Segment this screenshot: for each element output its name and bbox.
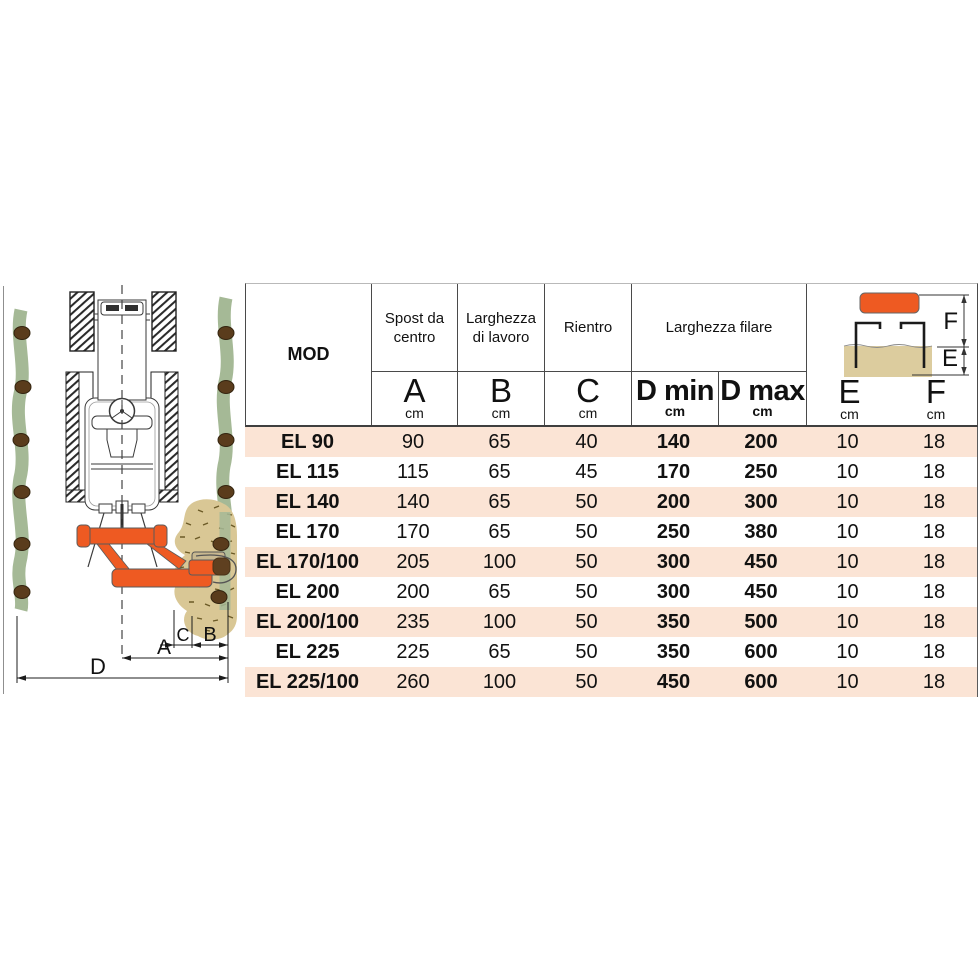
table-cell-f: 18 bbox=[890, 607, 978, 637]
table-row: EL 225/100260100504506001018 bbox=[245, 667, 977, 697]
ef-label-f: F bbox=[943, 308, 958, 335]
table-cell-e: 10 bbox=[805, 517, 890, 547]
table-cell-a: 90 bbox=[370, 427, 456, 457]
table-cell-e: 10 bbox=[805, 607, 890, 637]
dim-label-b: B bbox=[203, 624, 216, 646]
table-cell-model: EL 225 bbox=[245, 637, 370, 667]
spec-table: MOD Spost da centro Larghezza di lavoro … bbox=[245, 283, 978, 697]
table-cell-f: 18 bbox=[890, 427, 978, 457]
table-cell-f: 18 bbox=[890, 517, 978, 547]
table-cell-a: 115 bbox=[370, 457, 456, 487]
table-cell-b: 65 bbox=[456, 427, 543, 457]
table-cell-dmax: 600 bbox=[717, 667, 805, 697]
table-cell-dmin: 300 bbox=[630, 577, 717, 607]
table-cell-dmax: 450 bbox=[717, 547, 805, 577]
header-col-c: C cm bbox=[544, 371, 631, 425]
table-cell-b: 100 bbox=[456, 547, 543, 577]
table-cell-dmax: 300 bbox=[717, 487, 805, 517]
table-cell-dmin: 140 bbox=[630, 427, 717, 457]
plant-row-left bbox=[13, 310, 31, 610]
table-cell-b: 65 bbox=[456, 487, 543, 517]
table-cell-c: 50 bbox=[543, 487, 630, 517]
header-group-spost-da-centro: Spost da centro bbox=[371, 284, 457, 371]
table-cell-b: 65 bbox=[456, 517, 543, 547]
table-cell-model: EL 90 bbox=[245, 427, 370, 457]
table-header: MOD Spost da centro Larghezza di lavoro … bbox=[245, 283, 978, 427]
table-cell-b: 100 bbox=[456, 607, 543, 637]
table-row: EL 909065401402001018 bbox=[245, 427, 977, 457]
table-cell-dmax: 250 bbox=[717, 457, 805, 487]
table-cell-b: 65 bbox=[456, 637, 543, 667]
header-col-e: E cm bbox=[807, 374, 892, 422]
table-cell-dmin: 170 bbox=[630, 457, 717, 487]
table-cell-dmax: 450 bbox=[717, 577, 805, 607]
table-cell-f: 18 bbox=[890, 547, 978, 577]
table-cell-f: 18 bbox=[890, 667, 978, 697]
table-cell-e: 10 bbox=[805, 637, 890, 667]
page: { "colors": { "accent_orange": "#EE5A22"… bbox=[0, 0, 980, 980]
header-mod: MOD bbox=[246, 284, 371, 425]
header-group-rientro: Rientro bbox=[544, 284, 631, 371]
table-cell-model: EL 200 bbox=[245, 577, 370, 607]
table-cell-a: 200 bbox=[370, 577, 456, 607]
table-row: EL 20020065503004501018 bbox=[245, 577, 977, 607]
table-row: EL 17017065502503801018 bbox=[245, 517, 977, 547]
table-cell-a: 225 bbox=[370, 637, 456, 667]
header-group-larghezza-filare: Larghezza filare bbox=[631, 284, 806, 371]
table-cell-c: 50 bbox=[543, 637, 630, 667]
table-cell-e: 10 bbox=[805, 547, 890, 577]
table-cell-dmin: 200 bbox=[630, 487, 717, 517]
table-cell-b: 100 bbox=[456, 667, 543, 697]
table-row: EL 200/100235100503505001018 bbox=[245, 607, 977, 637]
table-cell-a: 170 bbox=[370, 517, 456, 547]
table-cell-c: 45 bbox=[543, 457, 630, 487]
implement-toolbar bbox=[82, 528, 162, 544]
table-cell-b: 65 bbox=[456, 457, 543, 487]
front-wheel-right bbox=[152, 292, 176, 351]
table-cell-a: 140 bbox=[370, 487, 456, 517]
header-col-dmax: D max cm bbox=[718, 371, 806, 425]
header-col-b: B cm bbox=[457, 371, 544, 425]
ef-diagram: F E bbox=[807, 284, 980, 379]
table-cell-c: 40 bbox=[543, 427, 630, 457]
table-row: EL 11511565451702501018 bbox=[245, 457, 977, 487]
table-cell-e: 10 bbox=[805, 577, 890, 607]
table-cell-model: EL 170 bbox=[245, 517, 370, 547]
dim-label-a: A bbox=[157, 636, 171, 659]
table-cell-model: EL 140 bbox=[245, 487, 370, 517]
table-cell-model: EL 225/100 bbox=[245, 667, 370, 697]
table-cell-c: 50 bbox=[543, 547, 630, 577]
table-cell-e: 10 bbox=[805, 457, 890, 487]
table-row: EL 22522565503506001018 bbox=[245, 637, 977, 667]
table-cell-model: EL 115 bbox=[245, 457, 370, 487]
table-cell-f: 18 bbox=[890, 487, 978, 517]
header-ef-diagram-cell: F E E cm F cm bbox=[806, 284, 979, 425]
header-group-larghezza-di-lavoro: Larghezza di lavoro bbox=[457, 284, 544, 371]
table-cell-a: 205 bbox=[370, 547, 456, 577]
table-cell-dmax: 200 bbox=[717, 427, 805, 457]
table-cell-b: 65 bbox=[456, 577, 543, 607]
table-cell-f: 18 bbox=[890, 577, 978, 607]
table-cell-model: EL 170/100 bbox=[245, 547, 370, 577]
table-cell-c: 50 bbox=[543, 577, 630, 607]
header-col-a: A cm bbox=[371, 371, 457, 425]
field-diagram: C B A D bbox=[0, 280, 245, 710]
table-cell-dmin: 250 bbox=[630, 517, 717, 547]
table-cell-f: 18 bbox=[890, 637, 978, 667]
ef-implement-body bbox=[860, 293, 919, 313]
header-ef-labels: E cm F cm bbox=[807, 374, 980, 422]
table-cell-c: 50 bbox=[543, 607, 630, 637]
table-cell-dmax: 500 bbox=[717, 607, 805, 637]
table-row: EL 14014065502003001018 bbox=[245, 487, 977, 517]
table-cell-dmax: 380 bbox=[717, 517, 805, 547]
header-col-dmin: D min cm bbox=[631, 371, 718, 425]
table-cell-a: 235 bbox=[370, 607, 456, 637]
table-cell-c: 50 bbox=[543, 517, 630, 547]
table-cell-e: 10 bbox=[805, 667, 890, 697]
dim-label-d: D bbox=[90, 654, 106, 679]
header-col-f: F cm bbox=[892, 374, 980, 422]
table-cell-a: 260 bbox=[370, 667, 456, 697]
table-cell-c: 50 bbox=[543, 667, 630, 697]
table-cell-dmin: 350 bbox=[630, 607, 717, 637]
front-wheel-left bbox=[70, 292, 94, 351]
table-cell-e: 10 bbox=[805, 427, 890, 457]
table-cell-dmin: 300 bbox=[630, 547, 717, 577]
table-body: EL 909065401402001018EL 1151156545170250… bbox=[245, 427, 978, 697]
table-cell-model: EL 200/100 bbox=[245, 607, 370, 637]
table-cell-dmax: 600 bbox=[717, 637, 805, 667]
table-cell-f: 18 bbox=[890, 457, 978, 487]
table-row: EL 170/100205100503004501018 bbox=[245, 547, 977, 577]
table-cell-e: 10 bbox=[805, 487, 890, 517]
table-cell-dmin: 350 bbox=[630, 637, 717, 667]
dim-label-c: C bbox=[177, 625, 190, 645]
table-cell-dmin: 450 bbox=[630, 667, 717, 697]
ef-label-e: E bbox=[942, 345, 958, 372]
